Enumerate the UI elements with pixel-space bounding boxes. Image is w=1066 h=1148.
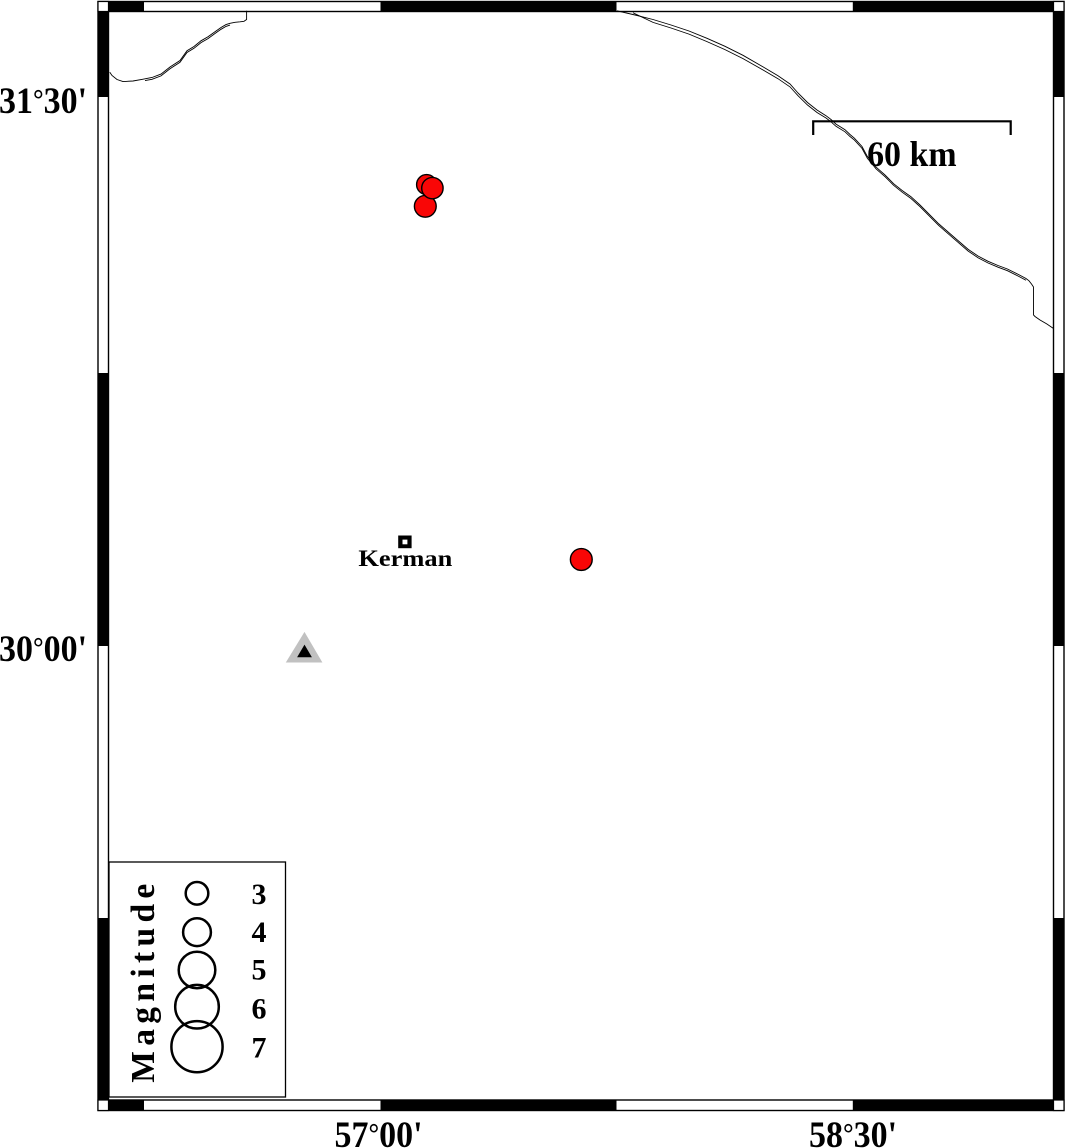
svg-text:57°00': 57°00': [335, 1115, 423, 1148]
svg-text:6: 6: [252, 993, 267, 1026]
svg-text:Kerman: Kerman: [358, 546, 452, 571]
svg-text:60 km: 60 km: [867, 134, 957, 174]
svg-text:Magnitude: Magnitude: [125, 884, 162, 1083]
svg-text:7: 7: [252, 1031, 267, 1064]
svg-text:31°30': 31°30': [0, 81, 87, 122]
svg-text:4: 4: [252, 916, 267, 949]
svg-text:58°30': 58°30': [809, 1115, 897, 1148]
svg-text:5: 5: [252, 954, 267, 987]
svg-text:3: 3: [252, 878, 267, 911]
svg-text:30°00': 30°00': [0, 629, 87, 670]
